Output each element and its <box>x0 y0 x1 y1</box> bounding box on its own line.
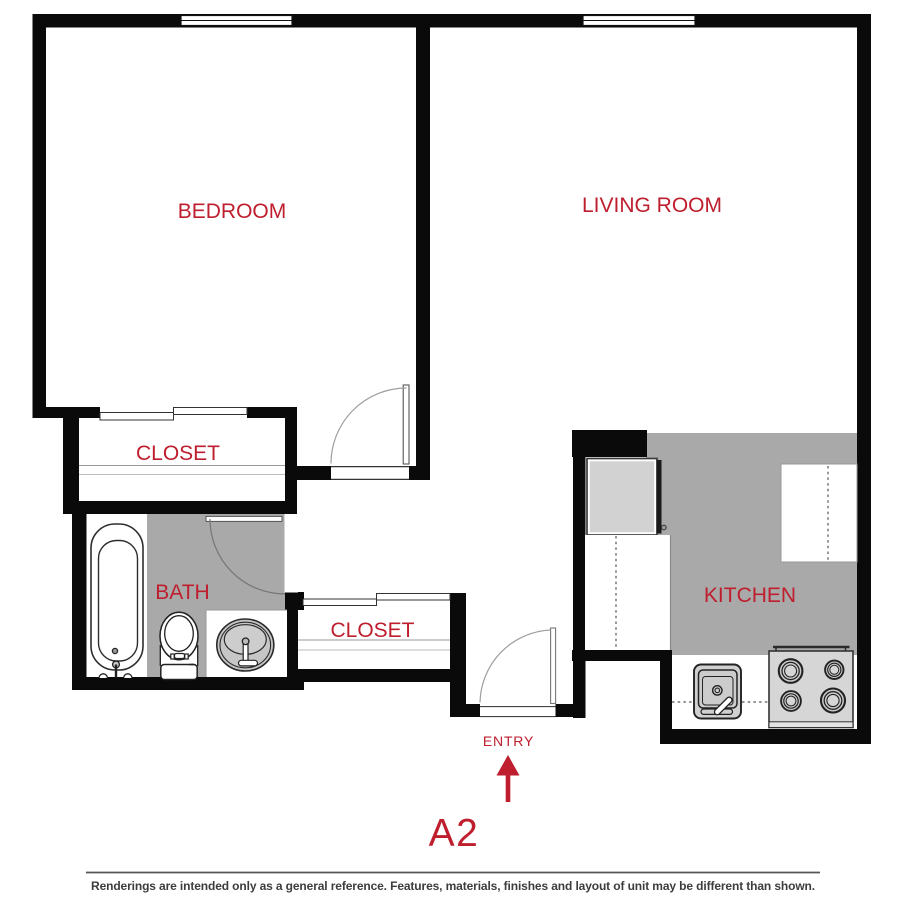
svg-text:BEDROOM: BEDROOM <box>178 200 287 223</box>
svg-text:BATH: BATH <box>155 581 209 604</box>
svg-text:CLOSET: CLOSET <box>330 619 414 642</box>
svg-text:LIVING ROOM: LIVING ROOM <box>582 194 722 217</box>
svg-text:A2: A2 <box>429 812 480 855</box>
svg-text:KITCHEN: KITCHEN <box>704 584 796 607</box>
svg-text:Renderings are intended only a: Renderings are intended only as a genera… <box>91 879 815 893</box>
svg-text:ENTRY: ENTRY <box>483 733 534 749</box>
svg-text:CLOSET: CLOSET <box>136 442 220 465</box>
